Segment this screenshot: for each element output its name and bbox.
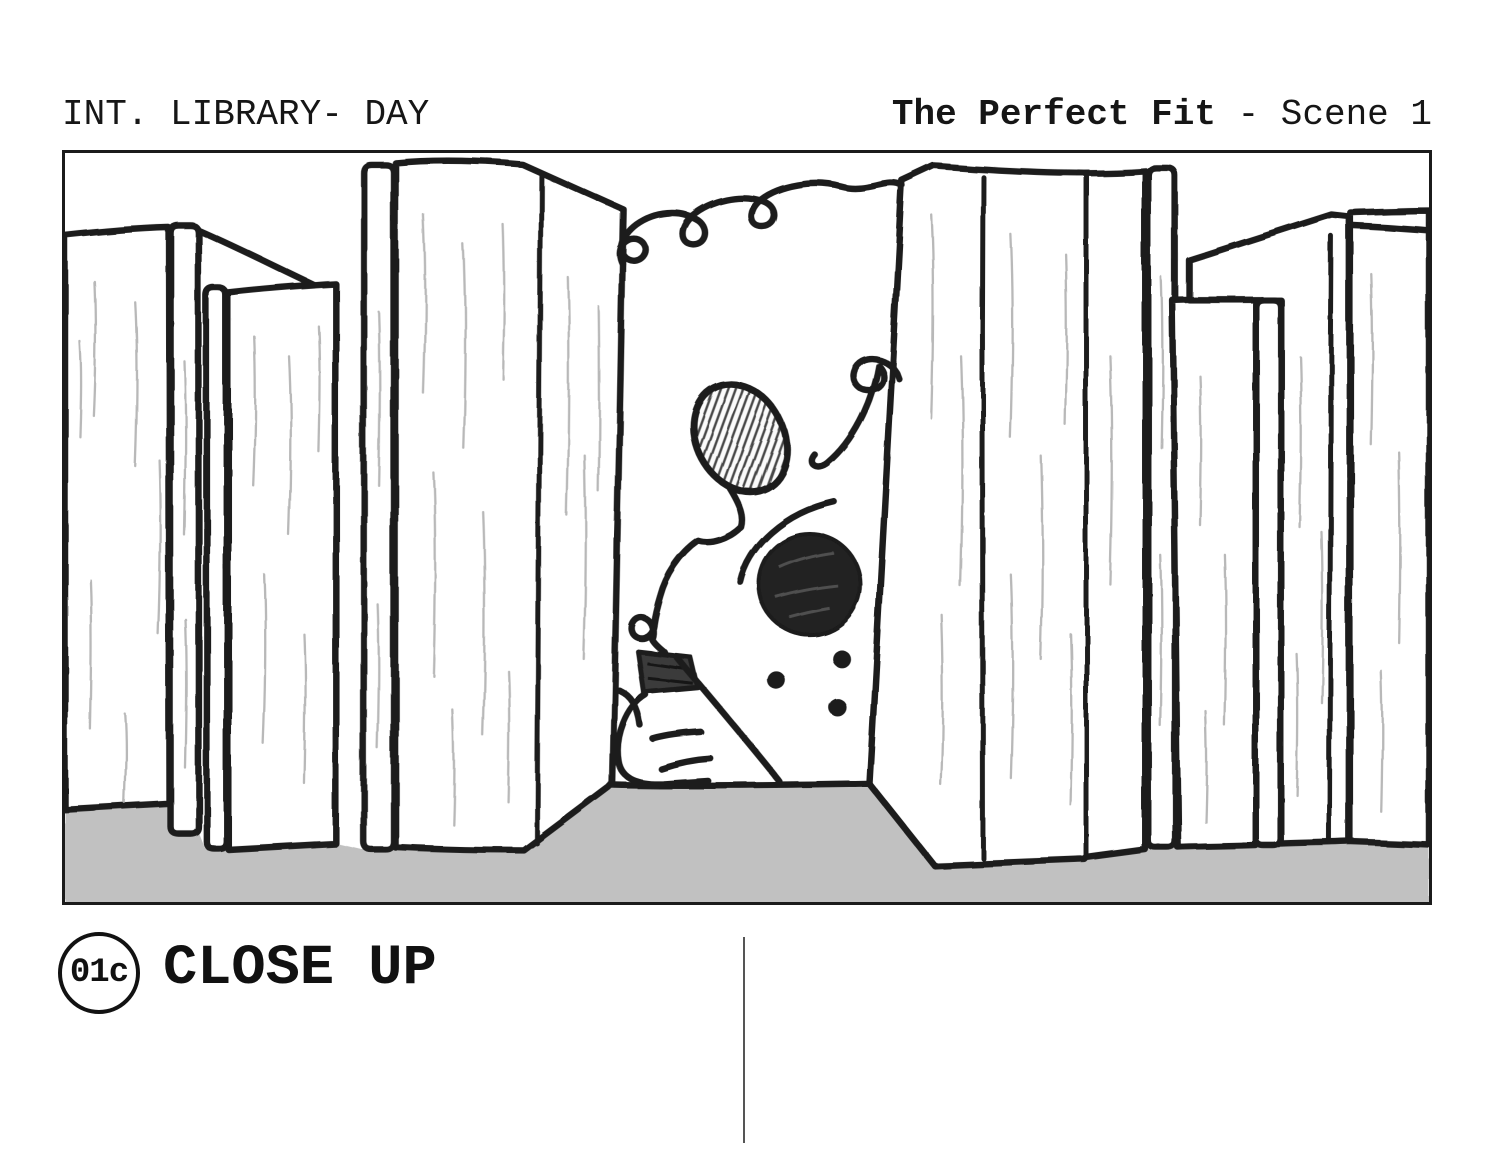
book-rightmost <box>1350 211 1429 845</box>
book-cover-line <box>1086 173 1087 857</box>
shot-number-badge: 01c <box>58 932 140 1014</box>
project-title-block: The Perfect Fit - Scene 1 <box>892 97 1432 133</box>
claw-line <box>653 732 701 739</box>
whisker-dot <box>768 672 786 690</box>
whisker-dot <box>828 698 846 716</box>
panel-artwork <box>65 153 1429 902</box>
face-curl <box>631 617 664 652</box>
face-outline <box>698 527 741 542</box>
book-cover-line <box>982 177 983 859</box>
book-spine <box>1172 299 1256 847</box>
book-spine <box>65 227 170 809</box>
scene-number-label: - Scene 1 <box>1238 94 1432 135</box>
fluffy-hair-curls <box>620 183 902 264</box>
poodle-character <box>618 183 903 784</box>
claw-line <box>661 759 711 769</box>
scene-heading: INT. LIBRARY- DAY <box>62 97 429 133</box>
eye <box>759 534 861 635</box>
book-cover-line <box>1329 236 1331 841</box>
book-large-right <box>869 166 1145 865</box>
book-top-edge <box>198 230 315 286</box>
ear <box>675 367 806 508</box>
book-spine <box>206 288 226 849</box>
shot-type-label: CLOSE UP <box>163 941 437 998</box>
storyboard-page: { "header": { "scene_heading": "INT. LIB… <box>0 0 1490 1151</box>
face-outline <box>653 541 698 625</box>
project-title: The Perfect Fit <box>892 94 1216 135</box>
whisker-dot <box>833 650 851 668</box>
book-spine <box>1256 300 1281 846</box>
right-bookshelf <box>869 166 1429 865</box>
panel-divider-line <box>743 937 745 1143</box>
left-bookshelf <box>65 161 624 851</box>
storyboard-panel <box>62 150 1432 905</box>
book-spine <box>1148 168 1175 848</box>
shot-number: 01c <box>70 954 128 992</box>
